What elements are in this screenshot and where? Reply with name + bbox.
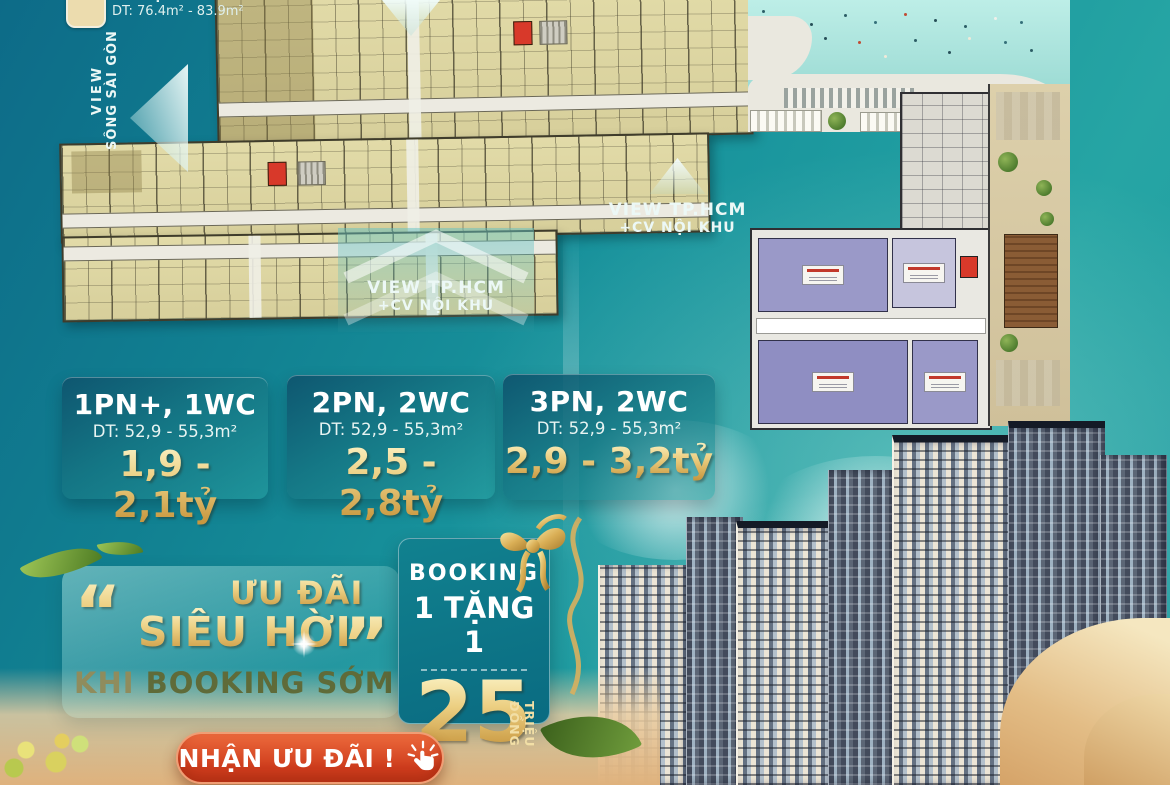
- shop-label-chip: [802, 265, 844, 285]
- booking-offer-card: BOOKING 1 TẶNG 1 25 TRIỆU ĐỒNG: [398, 538, 550, 724]
- stair-block: [298, 161, 326, 185]
- pavement: [996, 360, 1060, 406]
- unit-card-1pn: 1PN+, 1WC DT: 52,9 - 55,3m² 1,9 - 2,1tỷ: [62, 377, 268, 499]
- view-city-top-line1: VIEW TP.HCM: [585, 200, 770, 220]
- view-banner-city-mid: VIEW TP.HCM +CV NỘI KHU: [338, 228, 534, 332]
- gift-bow-icon: [489, 509, 577, 597]
- open-quote-icon: “: [74, 576, 121, 648]
- leaf-icon: [97, 536, 144, 562]
- unit-type: 1PN+, 1WC: [62, 388, 268, 421]
- tower: [736, 521, 836, 785]
- elevator-core: [513, 21, 532, 45]
- flowers: [0, 726, 110, 785]
- claim-offer-label: NHẬN ƯU ĐÃI !: [179, 744, 396, 773]
- click-hand-icon: [405, 740, 441, 776]
- tree: [998, 152, 1018, 172]
- unit-card-2pn: 2PN, 2WC DT: 52,9 - 55,3m² 2,5 - 2,8tỷ: [287, 375, 495, 499]
- floor-plan-slab-top: [214, 0, 753, 146]
- view-label-river: VIEW SÔNG SÀI GÒN: [85, 15, 125, 165]
- floor-plan-dark-units: [216, 0, 315, 144]
- unit-area: DT: 52,9 - 55,3m²: [503, 419, 715, 438]
- unit-type: 2PN, 2WC: [287, 386, 495, 419]
- view-label-city-top: VIEW TP.HCM +CV NỘI KHU: [585, 158, 770, 236]
- shop-label-chip: [924, 372, 966, 392]
- unit-area: DT: 52,9 - 55,3m²: [287, 420, 495, 439]
- unit-price: 2,5 - 2,8tỷ: [287, 442, 495, 524]
- elevator-core: [268, 162, 287, 186]
- unit-area: DT: 52,9 - 55,3m²: [62, 422, 268, 441]
- shop-unit: [892, 238, 956, 308]
- tree: [1040, 212, 1054, 226]
- view-city-mid-line1: VIEW TP.HCM: [338, 278, 534, 298]
- promo-line3-rest: BOOKING SỚM: [135, 666, 395, 700]
- booking-amount-unit: TRIỆU ĐỒNG: [507, 681, 537, 767]
- sparkle-icon: [290, 630, 318, 658]
- booking-subtitle: 1 TẶNG 1: [399, 591, 549, 659]
- shop-label-chip: [812, 372, 854, 392]
- view-city-mid-line2: +CV NỘI KHU: [338, 298, 534, 314]
- unit-price: 1,9 - 2,1tỷ: [62, 444, 268, 526]
- plan-gap: [406, 139, 420, 235]
- pavement: [996, 92, 1060, 140]
- shop-label-chip: [903, 263, 945, 283]
- tower: [892, 435, 1014, 785]
- up-arrow-icon: [650, 158, 706, 194]
- legend-text: Căn hộ 3PN 2WC DT: 76.4m² - 83.9m²: [112, 0, 244, 20]
- promo-line3-prefix: KHI: [74, 666, 135, 700]
- tower: [686, 517, 743, 785]
- promo-panel: “ ƯU ĐÃI SIÊU HỜI ” KHI BOOKING SỚM: [62, 566, 400, 718]
- unit-card-3pn: 3PN, 2WC DT: 52,9 - 55,3m² 2,9 - 3,2tỷ: [503, 374, 715, 500]
- shop-unit: [758, 238, 888, 312]
- corridor: [756, 318, 986, 334]
- tree: [1036, 180, 1052, 196]
- unit-price: 2,9 - 3,2tỷ: [503, 441, 715, 482]
- view-river-line1: VIEW: [90, 65, 105, 115]
- legend-unit-area: DT: 76.4m² - 83.9m²: [112, 4, 244, 20]
- view-city-top-line2: +CV NỘI KHU: [585, 220, 770, 236]
- shop-unit: [912, 340, 978, 424]
- unit-type: 3PN, 2WC: [503, 385, 715, 418]
- tree: [1000, 334, 1018, 352]
- view-river-line2: SÔNG SÀI GÒN: [105, 30, 120, 150]
- stair-block: [539, 20, 567, 45]
- shop-floor-plan: [750, 228, 992, 430]
- elevator-core: [960, 256, 978, 278]
- pergola-roof: [1004, 234, 1058, 328]
- promo-line3: KHI BOOKING SỚM: [74, 666, 395, 700]
- site-plan: [748, 84, 1068, 426]
- promo-line2: SIÊU HỜI: [138, 608, 352, 656]
- claim-offer-button[interactable]: NHẬN ƯU ĐÃI !: [176, 732, 444, 784]
- real-estate-poster: Căn hộ 3PN 2WC DT: 76.4m² - 83.9m² VIEW …: [0, 0, 1170, 785]
- tower: [828, 470, 899, 785]
- swimmers: [762, 10, 765, 13]
- shop-unit: [758, 340, 908, 424]
- landscape-terrace: [988, 84, 1070, 426]
- plan-gap: [248, 236, 261, 318]
